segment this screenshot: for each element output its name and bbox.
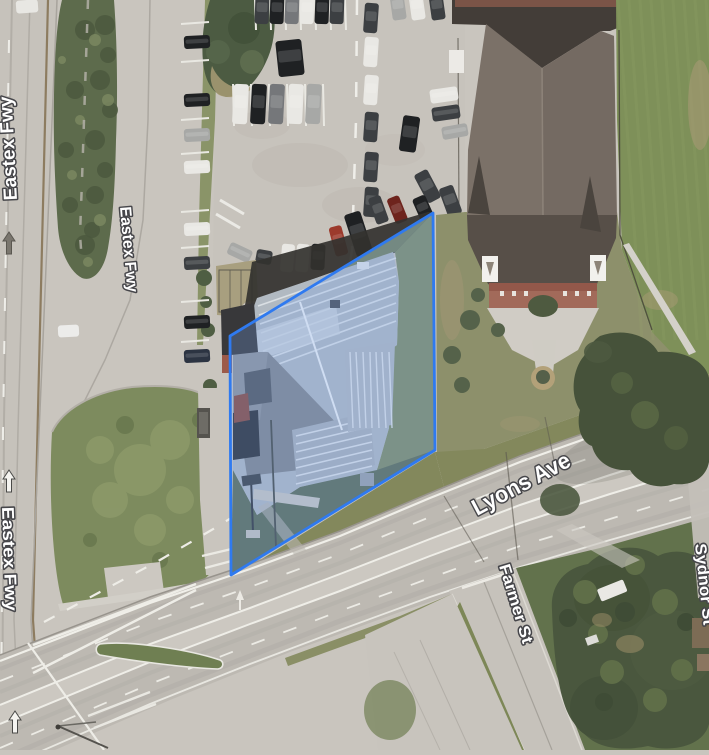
svg-text:Eastex Fwy: Eastex Fwy	[0, 506, 21, 611]
